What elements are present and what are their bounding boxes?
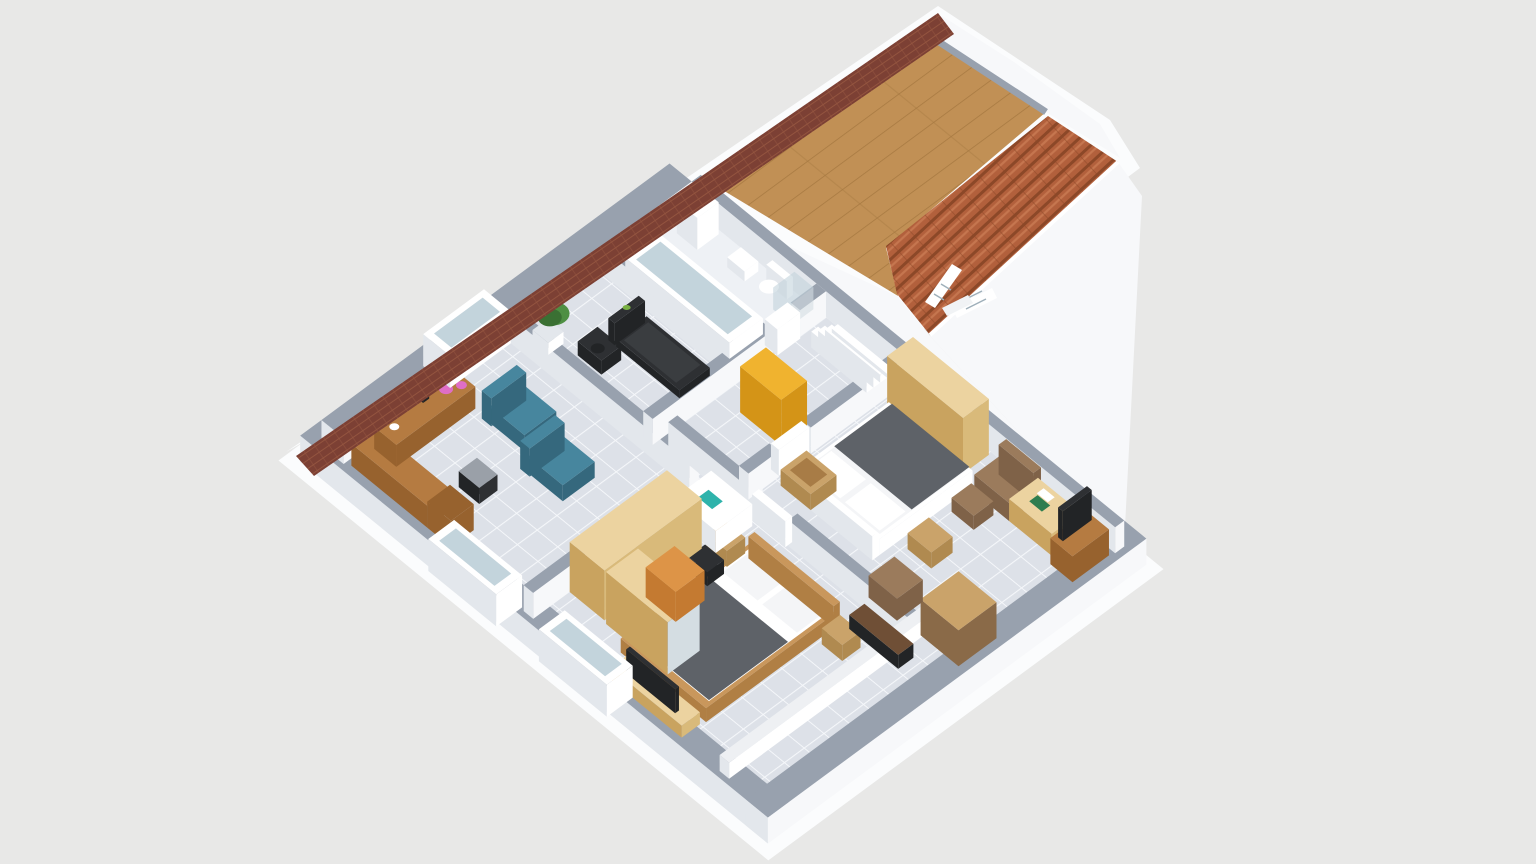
floorplan-stage xyxy=(0,0,1536,864)
bike-wheel xyxy=(591,343,605,353)
treadmill-display xyxy=(623,305,631,310)
bidet-bowl xyxy=(732,253,748,265)
coffee-cup xyxy=(389,423,399,430)
floorplan-3d-render xyxy=(0,0,1536,864)
